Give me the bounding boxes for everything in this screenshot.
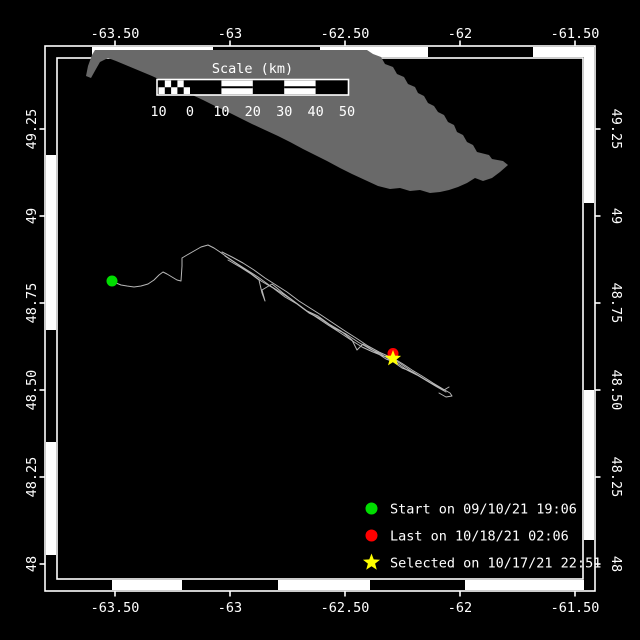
left-axis-label: 48 <box>24 556 40 572</box>
bottom-axis-label: -63 <box>218 600 242 616</box>
frame-zebra-segment <box>46 442 56 555</box>
scale-bar-number: 30 <box>276 104 292 120</box>
right-axis-label: 48 <box>608 556 624 572</box>
map-window: -63.50-63-62.50-62-61.50-63.50-63-62.50-… <box>0 0 640 640</box>
scale-bar-checker-cell <box>171 87 177 94</box>
frame-zebra-segment <box>584 47 594 203</box>
frame-zebra-segment <box>46 155 56 330</box>
top-axis-label: -63.50 <box>91 26 140 42</box>
left-axis-label: 48.50 <box>24 370 40 411</box>
left-axis-label: 48.75 <box>24 283 40 324</box>
legend-selected-label: Selected on 10/17/21 22:51 <box>390 556 601 572</box>
scale-bar-number: 10 <box>213 104 229 120</box>
frame-zebra-segment <box>112 580 182 590</box>
top-axis-label: -63 <box>218 26 242 42</box>
scale-bar-segment-line <box>284 86 315 88</box>
scale-bar-number: 50 <box>339 104 355 120</box>
top-axis-label: -62 <box>448 26 472 42</box>
left-axis-label: 48.25 <box>24 457 40 498</box>
scale-bar-checker-cell <box>165 81 171 88</box>
legend-start-label: Start on 09/10/21 19:06 <box>390 502 577 518</box>
right-axis-label: 48.50 <box>608 370 624 411</box>
bottom-axis-label: -61.50 <box>551 600 600 616</box>
right-axis-label: 49 <box>608 208 624 224</box>
start-marker <box>107 276 118 287</box>
scale-bar-title: Scale (km) <box>212 61 293 77</box>
scale-bar-number: 40 <box>307 104 323 120</box>
left-axis-label: 49 <box>24 208 40 224</box>
frame-zebra-segment <box>465 580 584 590</box>
scale-bar-number: 20 <box>245 104 261 120</box>
scale-bar-segment-line <box>221 86 252 88</box>
frame-zebra-segment <box>584 390 594 540</box>
track-map: -63.50-63-62.50-62-61.50-63.50-63-62.50-… <box>0 0 640 640</box>
top-axis-label: -61.50 <box>551 26 600 42</box>
legend-last-icon <box>366 530 378 542</box>
right-axis-label: 48.25 <box>608 457 624 498</box>
scale-bar-graphic <box>157 80 349 96</box>
legend-last-label: Last on 10/18/21 02:06 <box>390 529 569 545</box>
left-axis-label: 49.25 <box>24 109 40 150</box>
scale-bar-number: 0 <box>186 104 194 120</box>
bottom-axis-label: -63.50 <box>91 600 140 616</box>
legend-start-icon <box>366 503 378 515</box>
scale-bar-checker-cell <box>159 87 165 94</box>
scale-bar-checker-cell <box>177 81 183 88</box>
legend: Start on 09/10/21 19:06 Last on 10/18/21… <box>363 502 601 572</box>
bottom-axis-label: -62.50 <box>321 600 370 616</box>
scale-bar-checker-cell <box>184 87 190 94</box>
scale-bar-number: 10 <box>150 104 166 120</box>
frame-zebra-segment <box>278 580 370 590</box>
top-axis-label: -62.50 <box>321 26 370 42</box>
right-axis-label: 48.75 <box>608 283 624 324</box>
right-axis-label: 49.25 <box>608 109 624 150</box>
bottom-axis-label: -62 <box>448 600 472 616</box>
